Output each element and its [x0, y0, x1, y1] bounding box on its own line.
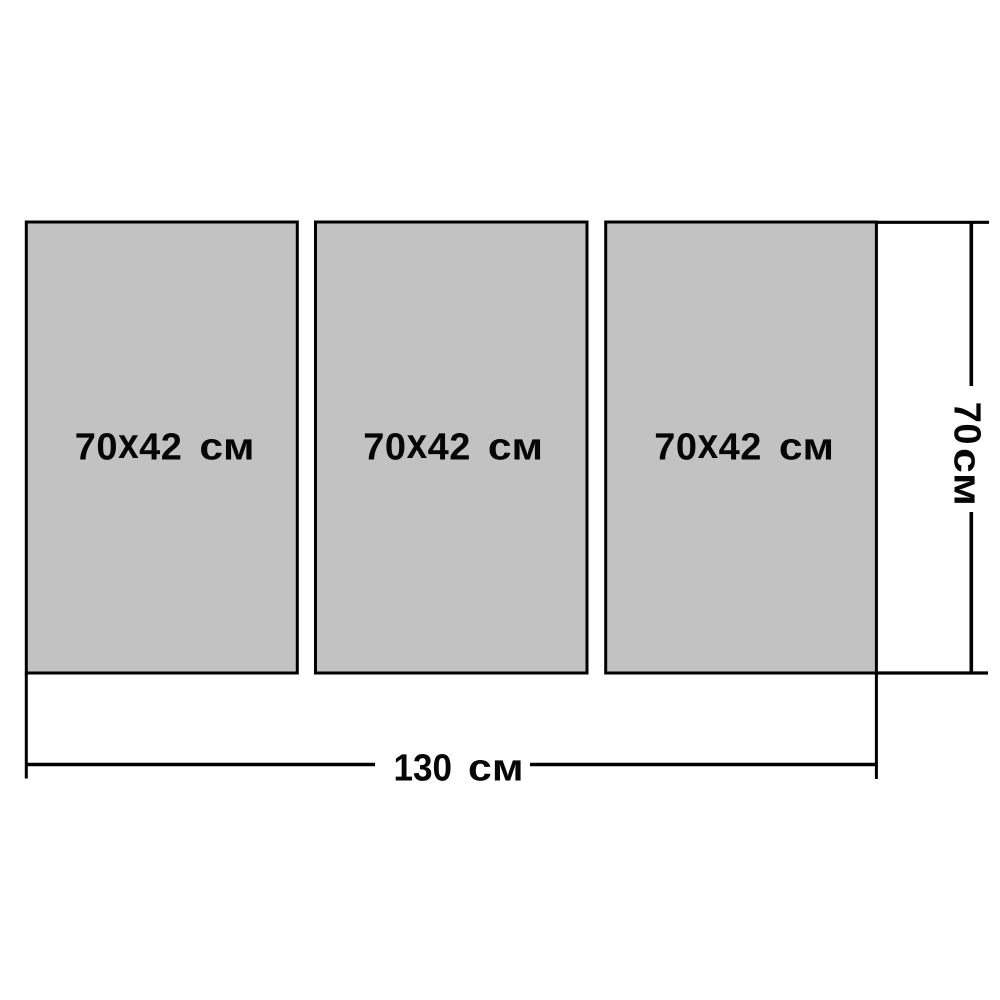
svg-text:70х42см: 70х42см [363, 420, 543, 469]
svg-text:70см: 70см [946, 402, 988, 506]
svg-text:70х42см: 70х42см [654, 420, 834, 469]
svg-text:70х42см: 70х42см [75, 420, 255, 469]
